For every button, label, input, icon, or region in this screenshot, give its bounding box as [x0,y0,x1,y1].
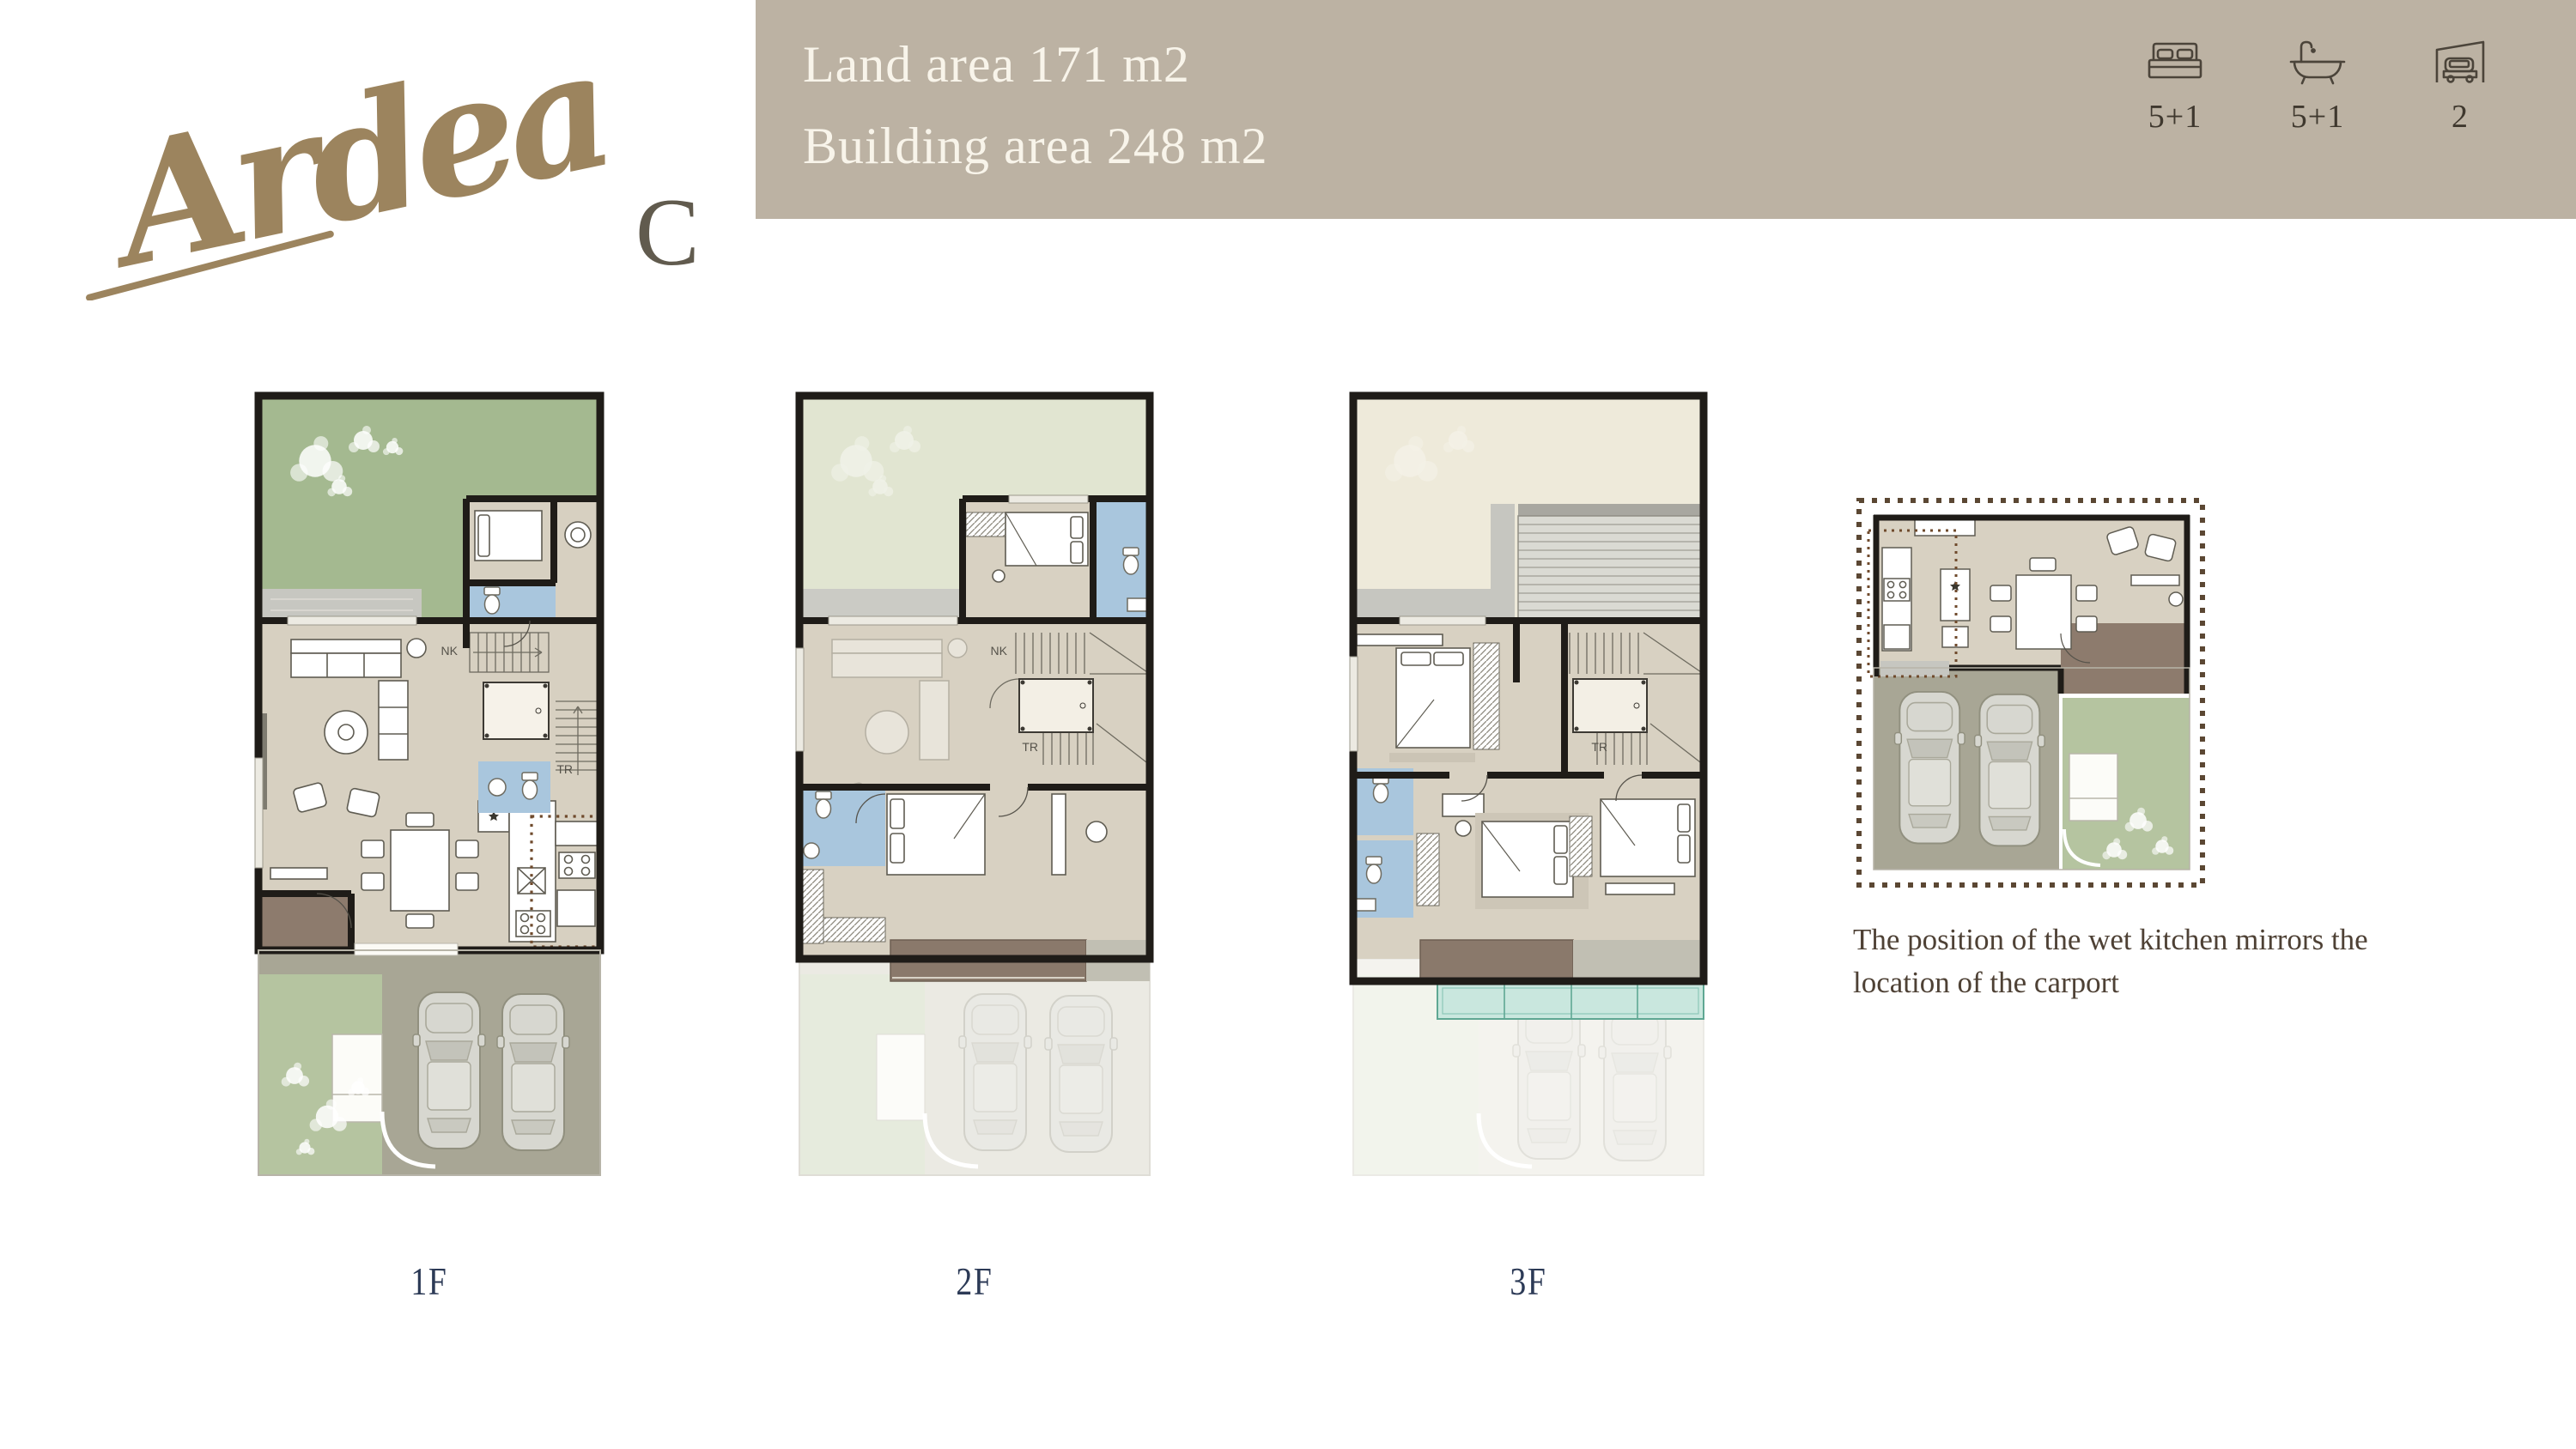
logo-script-wordmark: Ardea [52,17,621,300]
stat-bedrooms: 5+1 [2145,36,2205,136]
stat-carport: 2 [2430,36,2490,136]
bathrooms-count: 5+1 [2291,98,2344,136]
bed-icon [2145,36,2205,86]
logo-variant-text: C [635,179,700,286]
label-tr-1f: TR [556,762,573,776]
balcony [1420,940,1704,981]
bedrooms-count: 5+1 [2148,98,2202,136]
floor-plan-2f: NK TR [794,391,1155,1183]
bathroom-2 [478,761,550,813]
land-area-text: Land area 171 m2 [803,24,1268,106]
carport-count: 2 [2451,98,2469,136]
planter [2069,754,2117,821]
carport-icon [2430,36,2490,86]
label-nk-2f: NK [991,644,1008,658]
header-band: Land area 171 m2 Building area 248 m2 5+… [756,0,2576,219]
ghost-carport [799,959,1150,1175]
roof-void [1353,396,1704,621]
logo: Ardea C [34,17,738,300]
logo-name-text: Ardea [87,17,622,300]
bathroom-4 [799,787,885,866]
bath-icon [2287,36,2348,86]
lift [1573,679,1647,732]
label-nk-1f: NK [441,644,459,658]
bathroom-3 [1093,500,1150,621]
lift [1019,679,1093,732]
floor-label-3f: 3F [1381,1258,1676,1304]
brochure-page: Ardea C Land area 171 m2 Building area 2… [0,0,2576,1449]
floor-label-1f: 1F [285,1258,574,1304]
floor-plan-1f-graphic: NK TR [253,391,605,1183]
bathroom-6 [1353,840,1413,918]
stat-bathrooms: 5+1 [2287,36,2348,136]
stats-group: 5+1 5+1 [2145,36,2490,136]
floor-plan-2f-graphic: NK TR [794,391,1155,1183]
glass-canopy [1437,983,1704,1019]
bathroom-1 [468,583,556,621]
mirror-plan-graphic [1855,496,2207,889]
foyer [258,894,351,954]
floor-plan-3f-graphic: TR [1348,391,1709,1183]
floor-plan-3f: TR [1348,391,1709,1183]
area-summary: Land area 171 m2 Building area 248 m2 [803,24,1268,187]
mirror-plan [1855,496,2207,889]
floor-plan-1f: NK TR [253,391,605,1183]
lift [483,682,549,739]
building-area-text: Building area 248 m2 [803,106,1268,187]
foyer [2061,623,2190,694]
car-2 [497,994,569,1150]
floor-label-2f: 2F [827,1258,1122,1304]
car-1 [413,992,485,1149]
wet-kitchen-note: The position of the wet kitchen mirrors … [1853,919,2437,1003]
planter [332,1034,382,1122]
label-tr-2f: TR [1022,740,1038,754]
label-tr-3f: TR [1591,740,1607,754]
